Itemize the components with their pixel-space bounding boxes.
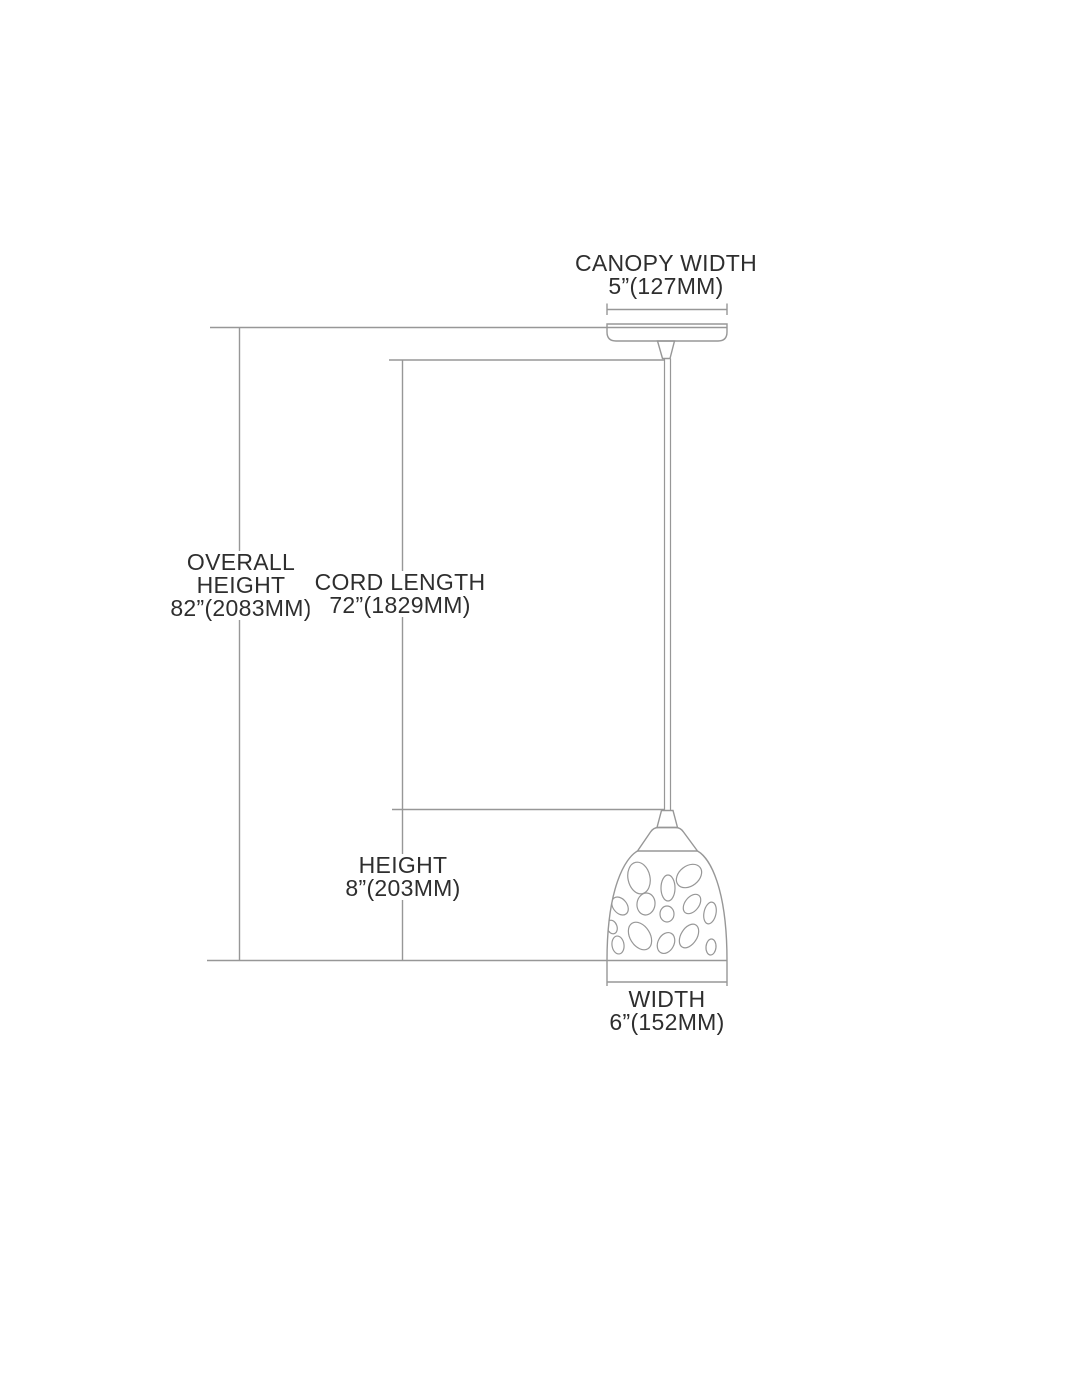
shade-hole [705,939,716,956]
height-label: HEIGHT 8”(203MM) [340,854,465,900]
height-value: 8”(203MM) [345,877,460,900]
shade-hole [660,906,674,922]
canopy-outline [607,324,727,341]
shade-hole [605,919,619,936]
overall-height-label: OVERALL HEIGHT 82”(2083MM) [165,551,316,620]
shade-hole [654,930,678,957]
shade-hole [680,891,705,917]
width-label: WIDTH 6”(152MM) [604,988,729,1034]
cord-length-label: CORD LENGTH 72”(1829MM) [310,571,491,617]
shade-hole [661,875,675,901]
overall-height-value: 82”(2083MM) [170,597,311,620]
shade-hole [624,918,657,954]
socket-stem [657,811,678,828]
canopy-neck [658,341,675,359]
diagram-canvas: CANOPY WIDTH 5”(127MM) OVERALL HEIGHT 82… [0,0,1080,1398]
canopy-width-dimension-line [607,304,727,316]
canopy-width-name: CANOPY WIDTH [575,252,757,275]
shade-hole [611,935,625,954]
canopy-width-label: CANOPY WIDTH 5”(127MM) [570,252,762,298]
shade-hole [672,860,706,893]
width-value: 6”(152MM) [609,1011,724,1034]
width-dimension-line [607,961,727,987]
width-name: WIDTH [609,988,724,1011]
overall-height-name-line2: HEIGHT [170,574,311,597]
dimension-lines [207,304,727,987]
cord-length-name: CORD LENGTH [315,571,486,594]
shade-hole [702,901,718,925]
cord-length-value: 72”(1829MM) [315,594,486,617]
shade-holes [605,860,718,957]
pendant-diagram-linework [0,0,1080,1398]
canopy-width-value: 5”(127MM) [575,275,757,298]
shade-hole [625,860,653,896]
height-name: HEIGHT [345,854,460,877]
pendant-drawing [605,324,727,961]
shade-hole [675,921,702,952]
overall-height-name-line1: OVERALL [170,551,311,574]
shade-cap [638,828,698,852]
shade-hole [608,894,631,918]
shade-hole [636,892,657,916]
